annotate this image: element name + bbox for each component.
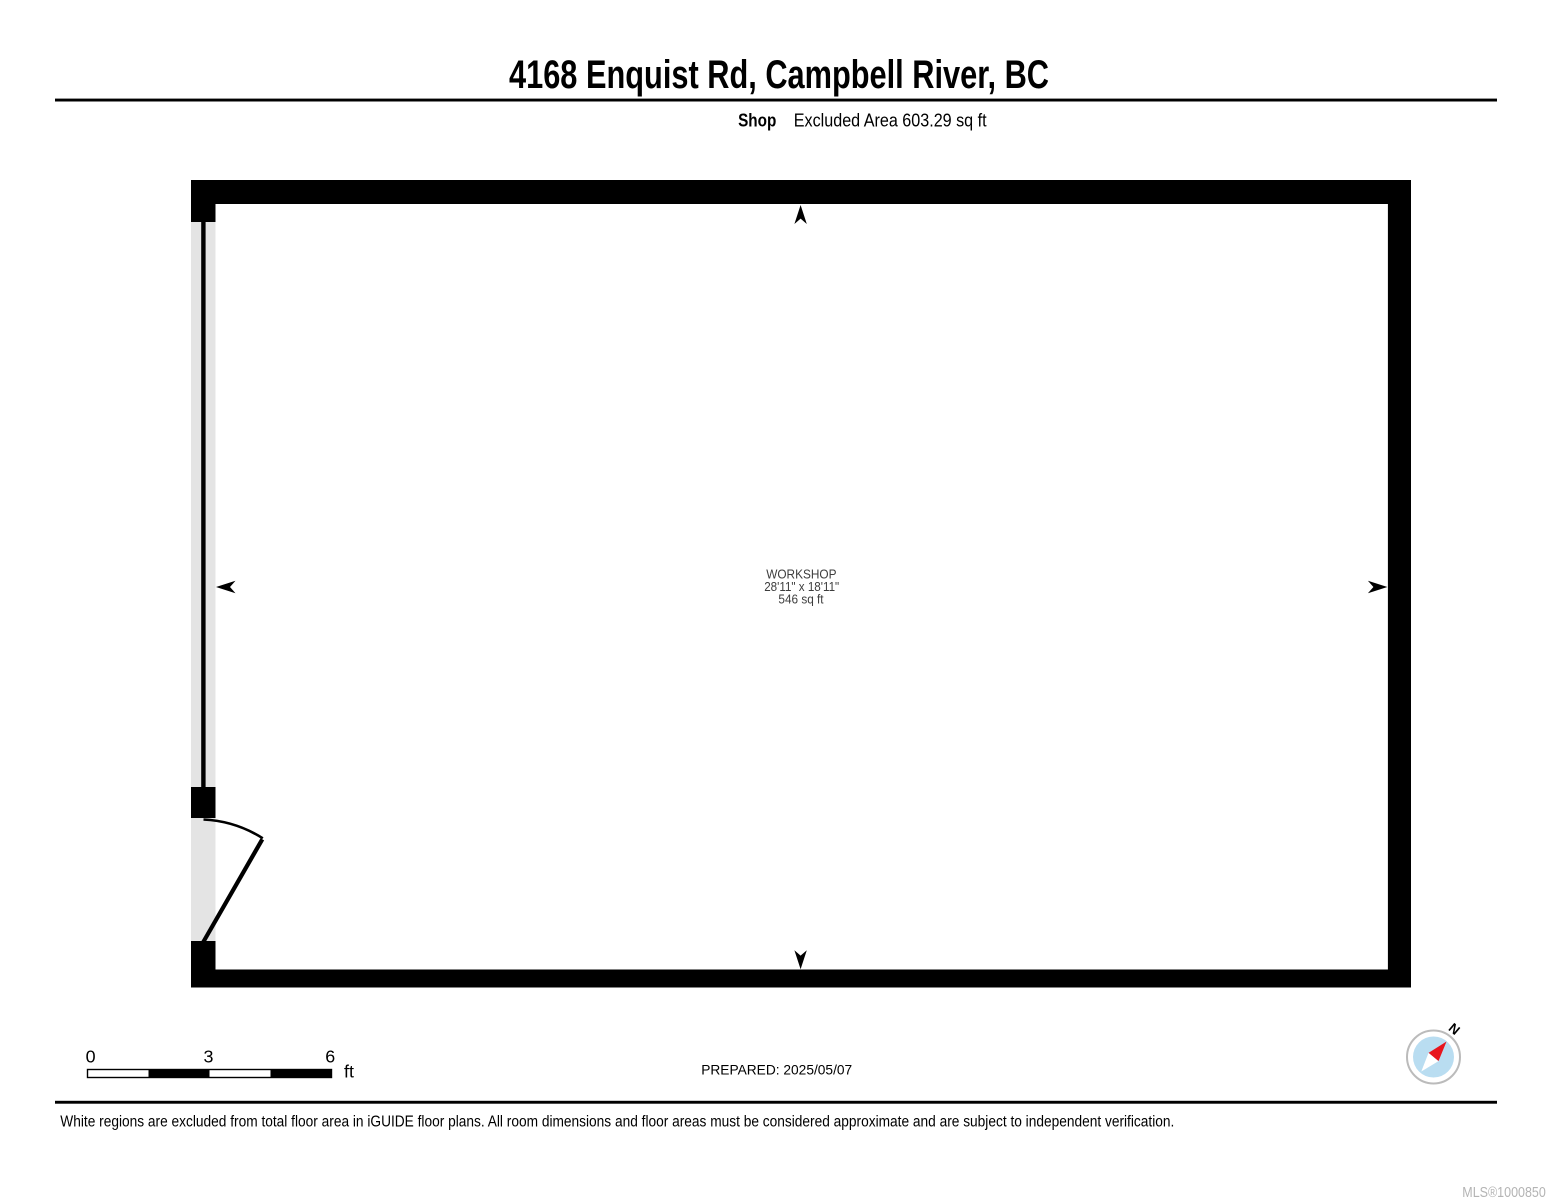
svg-text:546 sq ft: 546 sq ft	[778, 592, 823, 607]
svg-text:PREPARED: 2025/05/07: PREPARED: 2025/05/07	[701, 1062, 852, 1077]
svg-text:3: 3	[204, 1047, 214, 1067]
svg-text:4168 Enquist Rd, Campbell Rive: 4168 Enquist Rd, Campbell River, BC	[509, 53, 1049, 97]
svg-text:White regions are excluded fro: White regions are excluded from total fl…	[60, 1113, 1174, 1130]
svg-text:Shop: Shop	[738, 110, 776, 131]
svg-text:6: 6	[325, 1047, 335, 1067]
svg-text:0: 0	[86, 1047, 96, 1067]
svg-text:ft: ft	[344, 1062, 354, 1082]
svg-text:Excluded Area 603.29 sq ft: Excluded Area 603.29 sq ft	[794, 110, 988, 131]
svg-text:MLS®1000850: MLS®1000850	[1462, 1185, 1546, 1200]
